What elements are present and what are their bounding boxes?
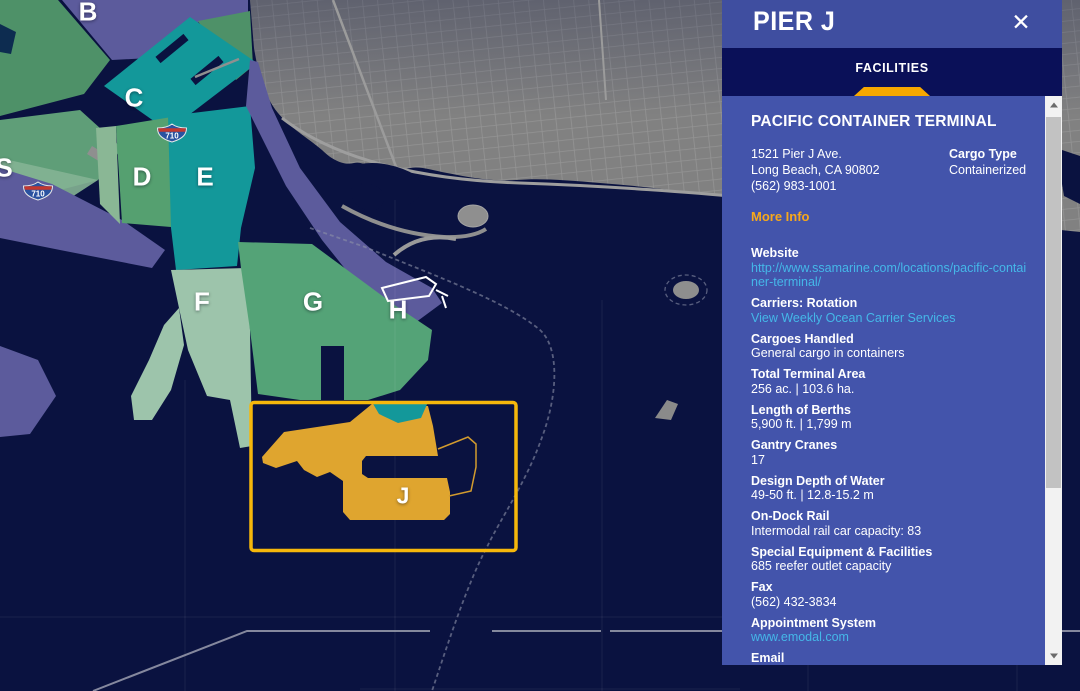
slip (321, 346, 344, 400)
phone-number: (562) 983-1001 (751, 178, 949, 194)
facility-fields: Websitehttp://www.ssamarine.com/location… (751, 246, 1027, 665)
field-label: Fax (751, 580, 1027, 595)
field-pair: EmailEmail the terminal (751, 651, 1027, 665)
pier-label-b[interactable]: B (79, 0, 98, 28)
field-pair: Fax(562) 432-3834 (751, 580, 1027, 609)
shore-island (458, 205, 488, 227)
scroll-up-button[interactable] (1045, 96, 1062, 114)
field-value: General cargo in containers (751, 346, 1027, 361)
field-label: Appointment System (751, 616, 1027, 631)
field-value: Intermodal rail car capacity: 83 (751, 524, 1027, 539)
field-link[interactable]: View Weekly Ocean Carrier Services (751, 311, 1027, 326)
field-pair: Design Depth of Water49-50 ft. | 12.8-15… (751, 474, 1027, 503)
cargo-type-value: Containerized (949, 162, 1026, 178)
triangle-up-icon (1050, 103, 1058, 108)
field-label: Length of Berths (751, 403, 1027, 418)
field-label: Website (751, 246, 1027, 261)
more-info-link[interactable]: More Info (751, 209, 1027, 224)
field-pair: Length of Berths5,900 ft. | 1,799 m (751, 403, 1027, 432)
interstate-710-shield: 710 (22, 182, 54, 201)
cargo-type-label: Cargo Type (949, 146, 1026, 162)
field-pair: Cargoes HandledGeneral cargo in containe… (751, 332, 1027, 361)
field-label: Carriers: Rotation (751, 296, 1027, 311)
svg-text:710: 710 (31, 190, 45, 199)
triangle-down-icon (1050, 654, 1058, 659)
field-pair: Gantry Cranes17 (751, 438, 1027, 467)
scroll-down-button[interactable] (1045, 647, 1062, 665)
field-label: Gantry Cranes (751, 438, 1027, 453)
panel-title: PIER J (753, 6, 835, 37)
pier-label-h[interactable]: H (389, 295, 408, 326)
field-pair: Carriers: RotationView Weekly Ocean Carr… (751, 296, 1027, 325)
panel-content: PACIFIC CONTAINER TERMINAL 1521 Pier J A… (722, 96, 1045, 665)
field-label: Total Terminal Area (751, 367, 1027, 382)
pier-label-e[interactable]: E (196, 162, 213, 193)
svg-text:710: 710 (165, 132, 179, 141)
address-line1: 1521 Pier J Ave. (751, 146, 949, 162)
field-label: On-Dock Rail (751, 509, 1027, 524)
scrollbar-thumb[interactable] (1046, 117, 1061, 488)
panel-scrollbar[interactable] (1045, 96, 1062, 665)
oil-island (673, 281, 699, 299)
tab-active-indicator (854, 87, 930, 96)
field-link[interactable]: www.emodal.com (751, 630, 1027, 645)
field-pair: Total Terminal Area256 ac. | 103.6 ha. (751, 367, 1027, 396)
tab-bar: FACILITIES (722, 48, 1062, 96)
field-pair: Special Equipment & Facilities685 reefer… (751, 545, 1027, 574)
field-link[interactable]: http://www.ssamarine.com/locations/pacif… (751, 261, 1027, 290)
field-label: Design Depth of Water (751, 474, 1027, 489)
pier-label-d[interactable]: D (133, 162, 152, 193)
field-pair: Appointment Systemwww.emodal.com (751, 616, 1027, 645)
pier-label-f[interactable]: F (194, 287, 210, 318)
address-block: 1521 Pier J Ave. Long Beach, CA 90802 (5… (751, 146, 1027, 194)
field-value: 5,900 ft. | 1,799 m (751, 417, 1027, 432)
close-icon[interactable]: ✕ (1008, 9, 1034, 35)
field-pair: Websitehttp://www.ssamarine.com/location… (751, 246, 1027, 290)
field-pair: On-Dock RailIntermodal rail car capacity… (751, 509, 1027, 538)
terminal-name: PACIFIC CONTAINER TERMINAL (751, 113, 1027, 131)
field-value: (562) 432-3834 (751, 595, 1027, 610)
field-value: 17 (751, 453, 1027, 468)
pier-label-s[interactable]: S (0, 153, 13, 184)
field-value: 685 reefer outlet capacity (751, 559, 1027, 574)
app-window: BCDESFGHJ 710710 PIER J ✕ FACILITIES PAC… (0, 0, 1080, 691)
tab-facilities[interactable]: FACILITIES (855, 61, 928, 83)
field-value: 256 ac. | 103.6 ha. (751, 382, 1027, 397)
field-label: Special Equipment & Facilities (751, 545, 1027, 560)
pier-label-g[interactable]: G (303, 287, 323, 318)
panel-body: PACIFIC CONTAINER TERMINAL 1521 Pier J A… (722, 96, 1062, 665)
pier-label-j[interactable]: J (397, 483, 410, 510)
interstate-710-shield: 710 (156, 124, 188, 143)
pier-info-panel: PIER J ✕ FACILITIES PACIFIC CONTAINER TE… (722, 0, 1062, 665)
field-label: Email (751, 651, 1027, 665)
pier-label-c[interactable]: C (125, 83, 144, 114)
address-line2: Long Beach, CA 90802 (751, 162, 949, 178)
field-label: Cargoes Handled (751, 332, 1027, 347)
field-value: 49-50 ft. | 12.8-15.2 m (751, 488, 1027, 503)
panel-header: PIER J ✕ (722, 0, 1062, 48)
